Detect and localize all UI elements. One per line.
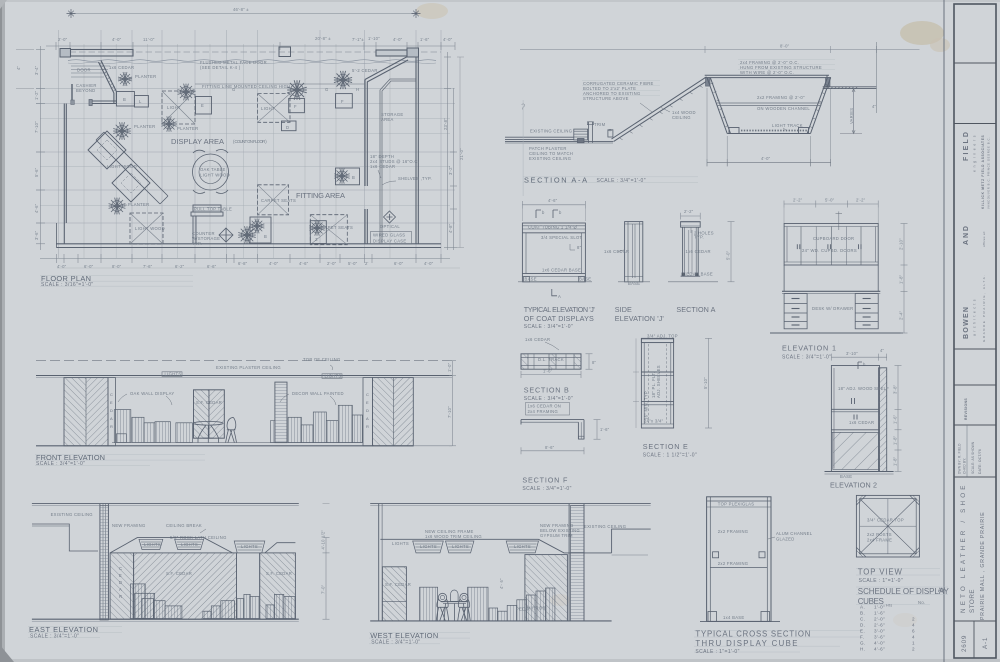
svg-text:7'-1"±: 7'-1"± [352, 37, 364, 42]
svg-text:B.: B. [860, 611, 865, 616]
svg-text:L: L [139, 99, 142, 104]
svg-text:BOWEN: BOWEN [963, 306, 970, 339]
svg-text:SCALE : 3/4"=1'-0": SCALE : 3/4"=1'-0" [524, 324, 573, 330]
svg-text:4'-6": 4'-6" [299, 261, 309, 266]
svg-text:REVISIONS: REVISIONS [964, 398, 968, 420]
svg-text:1x6 CEDAR: 1x6 CEDAR [849, 420, 874, 425]
svg-text:SCALE : 3/4"=1'-0": SCALE : 3/4"=1'-0" [524, 396, 573, 402]
svg-text:4": 4" [872, 104, 877, 109]
svg-text:SCALE: AS SHOWN: SCALE: AS SHOWN [971, 441, 975, 474]
svg-text:5'-0": 5'-0" [726, 250, 731, 260]
svg-text:D: D [119, 580, 122, 585]
svg-text:H.: H. [860, 647, 865, 652]
svg-text:8": 8" [577, 245, 582, 250]
svg-text:SCALE : 3/16"=1'-0": SCALE : 3/16"=1'-0" [41, 282, 94, 288]
svg-text:CEILING: CEILING [672, 115, 691, 120]
svg-text:SECTION E: SECTION E [643, 442, 688, 451]
svg-text:6'-2": 6'-2" [175, 264, 185, 269]
svg-text:LIGHTS: LIGHTS [165, 372, 182, 377]
svg-text:H: H [356, 87, 359, 92]
svg-text:SECTION F: SECTION F [522, 476, 568, 485]
svg-text:No.: No. [918, 600, 925, 605]
svg-text:1'-8": 1'-8" [893, 456, 898, 466]
svg-text:EXISTING PLASTER CEILING: EXISTING PLASTER CEILING [216, 365, 281, 370]
svg-text:S.F. CEDAR: S.F. CEDAR [166, 571, 192, 576]
svg-text:G.: G. [860, 641, 866, 646]
svg-text:4'- 6": 4'- 6" [499, 578, 504, 589]
svg-text:6'-0": 6'-0" [394, 261, 404, 266]
svg-text:PLANTER: PLANTER [177, 126, 198, 131]
svg-text:1'-6": 1'-6" [893, 414, 898, 424]
svg-text:4'-0": 4'-0" [393, 37, 403, 42]
svg-text:TRIM: TRIM [594, 122, 606, 127]
svg-text:TOP VIEW: TOP VIEW [858, 568, 903, 577]
svg-text:4'-8": 4'-8" [448, 223, 453, 233]
svg-text:CHKD BY:: CHKD BY: [963, 458, 967, 474]
svg-text:11'-0": 11'-0" [143, 37, 155, 42]
svg-text:LIGHTS: LIGHTS [514, 544, 531, 549]
svg-text:Hts: Hts [886, 604, 893, 608]
svg-text:ELEVATION 'J': ELEVATION 'J' [615, 314, 665, 323]
svg-text:8'-6": 8'-6" [545, 445, 555, 450]
svg-text:SECTION A-A: SECTION A-A [524, 175, 587, 184]
svg-text:2'-0": 2'-0" [58, 37, 68, 42]
svg-text:B: B [123, 97, 126, 102]
svg-text:WITH WIRE @ 2'-0" O.C.: WITH WIRE @ 2'-0" O.C. [740, 70, 794, 75]
svg-text:18" ADJ. WOOD SHELF: 18" ADJ. WOOD SHELF [838, 386, 889, 391]
svg-text:B: B [264, 234, 267, 239]
svg-text:BASE: BASE [840, 474, 852, 479]
svg-text:3'-6": 3'-6" [874, 635, 885, 640]
svg-text:1x6 CEDAR: 1x6 CEDAR [604, 249, 629, 254]
svg-text:ELEVATION 1: ELEVATION 1 [782, 344, 836, 353]
svg-text:Z: Z [315, 237, 318, 242]
svg-text:2: 2 [912, 647, 915, 652]
svg-text:A: A [110, 416, 113, 421]
svg-text:A: A [119, 587, 122, 592]
svg-text:5'-0": 5'-0" [348, 261, 358, 266]
svg-text:C.: C. [860, 617, 865, 622]
svg-text:DWN BY: R. FIELD: DWN BY: R. FIELD [958, 443, 962, 474]
svg-text:1'-0": 1'-0" [447, 362, 452, 372]
svg-text:EXISTING CEILING: EXISTING CEILING [584, 524, 626, 529]
svg-text:8'-0": 8'-0" [112, 264, 122, 269]
svg-text:LIGHT: LIGHT [167, 105, 181, 110]
svg-text:PLANTER: PLANTER [135, 74, 156, 79]
svg-text:46'-8" ±: 46'-8" ± [233, 7, 249, 12]
svg-text:2'-2": 2'-2" [684, 209, 694, 214]
svg-text:1x6 CEDAR BASE: 1x6 CEDAR BASE [542, 268, 581, 273]
svg-text:1'-2": 1'-2" [34, 90, 39, 100]
svg-text:1x6 CEDAR: 1x6 CEDAR [370, 164, 395, 169]
svg-text:1'-8": 1'-8" [893, 435, 898, 445]
svg-text:16" MIN. TYP.: 16" MIN. TYP. [644, 390, 649, 420]
svg-text:EXISTING CEILING: EXISTING CEILING [529, 156, 571, 161]
svg-text:SCALE : 3/4"=1'-0": SCALE : 3/4"=1'-0" [30, 633, 79, 639]
svg-text:EXISTING CEILING: EXISTING CEILING [530, 129, 572, 134]
svg-text:COAT TUBING 1 1/4"Ø: COAT TUBING 1 1/4"Ø [528, 224, 578, 229]
svg-text:24"x 3/4": 24"x 3/4" [644, 419, 664, 424]
svg-text:2'-0": 2'-0" [874, 617, 885, 622]
svg-text:R: R [119, 594, 122, 599]
svg-text:TYP.: TYP. [192, 241, 202, 246]
svg-text:C: C [119, 566, 122, 571]
svg-text:CARPET SEATS: CARPET SEATS [318, 225, 353, 230]
svg-text:DISPLAY CASE: DISPLAY CASE [373, 239, 406, 244]
svg-text:PULL TOP TABLE: PULL TOP TABLE [194, 207, 232, 212]
svg-text:D.L. TRACK: D.L. TRACK [538, 357, 564, 362]
svg-text:LIGHTS: LIGHTS [144, 542, 161, 547]
svg-text:SCALE : 3/4"=1'-0": SCALE : 3/4"=1'-0" [597, 178, 646, 184]
svg-text:A: A [366, 416, 369, 421]
svg-text:ALUM CHANNEL: ALUM CHANNEL [776, 531, 813, 536]
svg-text:NETO LEATHER / SHOE: NETO LEATHER / SHOE [960, 485, 967, 613]
svg-text:PLANTER: PLANTER [128, 202, 149, 207]
svg-text:1'-6": 1'-6" [874, 611, 885, 616]
svg-text:FITTING AREA: FITTING AREA [296, 191, 345, 200]
svg-text:A-1: A-1 [982, 637, 989, 649]
svg-text:5'-2 CEDAR: 5'-2 CEDAR [352, 68, 378, 73]
svg-text:offices at:: offices at: [982, 231, 986, 247]
svg-text:b: b [559, 210, 562, 215]
svg-text:NEW FRAMING: NEW FRAMING [112, 523, 146, 528]
svg-text:C: C [110, 392, 113, 397]
svg-text:TYPICAL CROSS SECTION: TYPICAL CROSS SECTION [695, 630, 810, 639]
svg-text:GLAZED: GLAZED [776, 537, 795, 542]
svg-text:3'-10": 3'-10" [846, 351, 858, 356]
svg-text:2'-0": 2'-0" [327, 261, 337, 266]
svg-text:SCALE : 3/4"=1'-0": SCALE : 3/4"=1'-0" [522, 486, 571, 492]
svg-text:F.: F. [860, 635, 864, 640]
svg-text:2x4 FRAME: 2x4 FRAME [867, 538, 892, 543]
svg-text:FIELD: FIELD [963, 131, 970, 161]
svg-text:20'-8" ±: 20'-8" ± [315, 36, 331, 41]
svg-text:SCALE : 3/4"=1'-0": SCALE : 3/4"=1'-0" [782, 355, 831, 361]
svg-text:1x6 CEDAR: 1x6 CEDAR [109, 65, 134, 70]
svg-text:5'-10": 5'-10" [703, 377, 708, 389]
svg-text:C: C [366, 392, 369, 397]
svg-text:BEYOND: BEYOND [76, 88, 95, 93]
svg-text:LIGHTS: LIGHTS [452, 544, 469, 549]
svg-text:CUPBOARD DOOR: CUPBOARD DOOR [813, 236, 854, 241]
svg-text:TYPICAL ELEVATION 'J': TYPICAL ELEVATION 'J' [524, 305, 596, 314]
svg-text:4: 4 [912, 623, 915, 628]
svg-text:2'-2": 2'-2" [856, 198, 866, 203]
svg-text:2x2 FRAMING: 2x2 FRAMING [718, 561, 749, 566]
svg-text:DISPLAY AREA: DISPLAY AREA [171, 137, 224, 146]
svg-text:THRU DISPLAY CUBE: THRU DISPLAY CUBE [695, 639, 797, 648]
svg-text:4": 4" [16, 65, 21, 70]
svg-text:LIGHTS: LIGHTS [325, 374, 342, 379]
svg-text:SIDE: SIDE [615, 305, 632, 314]
svg-text:3'-4": 3'-4" [34, 65, 39, 75]
svg-text:LIGHT WOOD: LIGHT WOOD [135, 226, 165, 231]
svg-text:5'-0": 5'-0" [825, 198, 835, 203]
svg-text:4'-10 1/2": 4'-10 1/2" [321, 530, 326, 550]
svg-text:AND: AND [963, 225, 970, 245]
svg-text:1x4 BASE: 1x4 BASE [723, 615, 745, 620]
svg-text:E: E [366, 400, 369, 405]
svg-text:SCALE : 1"=1'-0": SCALE : 1"=1'-0" [859, 578, 903, 584]
svg-text:D: D [366, 408, 369, 413]
svg-text:e n g i n e e r s: e n g i n e e r s [973, 134, 977, 172]
svg-text:2': 2' [365, 261, 369, 266]
svg-text:1'-6": 1'-6" [543, 369, 553, 374]
svg-text:3'-6": 3'-6" [34, 230, 39, 240]
svg-text:AREA: AREA [381, 117, 394, 122]
svg-text:21'-0": 21'-0" [459, 148, 464, 160]
svg-text:7'-0": 7'-0" [321, 584, 326, 594]
svg-text:3'-2": 3'-2" [448, 165, 453, 175]
svg-text:6'-8": 6'-8" [238, 261, 248, 266]
svg-text:LIGHTS: LIGHTS [420, 544, 437, 549]
svg-text:3'-0": 3'-0" [874, 629, 885, 634]
svg-text:OAK WALL DISPLAY: OAK WALL DISPLAY [130, 391, 174, 396]
svg-text:OPTICAL: OPTICAL [380, 224, 400, 229]
svg-text:4'-6": 4'-6" [874, 647, 885, 652]
svg-text:E.: E. [860, 629, 865, 634]
svg-text:DATE: OCT/76: DATE: OCT/76 [978, 449, 982, 474]
svg-text:4'-0": 4'-0" [269, 261, 279, 266]
svg-text:1: 1 [912, 641, 915, 646]
svg-text:VARIES: VARIES [849, 108, 854, 124]
svg-text:BASE: BASE [525, 277, 537, 282]
svg-text:8'-0": 8'-0" [780, 44, 790, 49]
svg-text:SHELVES ,TYP.: SHELVES ,TYP. [398, 176, 432, 181]
svg-text:S.F. CEDAR: S.F. CEDAR [385, 582, 411, 587]
svg-text:E: E [110, 400, 113, 405]
svg-text:D: D [286, 125, 289, 130]
svg-text:4'-0": 4'-0" [112, 37, 122, 42]
svg-text:2x4 FRAMING: 2x4 FRAMING [528, 409, 559, 414]
svg-text:b: b [863, 362, 866, 367]
svg-text:1x6 CEDAR ON: 1x6 CEDAR ON [528, 404, 562, 409]
svg-text:a r c h i t e c t s: a r c h i t e c t s [973, 298, 977, 336]
svg-text:4'-0": 4'-0" [57, 264, 67, 269]
svg-text:G: G [232, 87, 236, 92]
svg-text:R: R [366, 424, 369, 429]
svg-text:TOP OF CEILING: TOP OF CEILING [303, 357, 341, 362]
svg-text:LIGHTS: LIGHTS [241, 544, 258, 549]
svg-text:2609: 2609 [961, 635, 968, 652]
svg-text:4": 4" [880, 348, 885, 353]
svg-text:VANCOUVER B.C. PRINCE GEORG: VANCOUVER B.C. PRINCE GEORGE B.C. [987, 137, 991, 209]
svg-text:5'-6": 5'-6" [34, 167, 39, 177]
svg-text:7'-6": 7'-6" [143, 264, 153, 269]
svg-text:3/4" ADJ. TOP: 3/4" ADJ. TOP [647, 334, 678, 339]
svg-text:BASE: BASE [628, 281, 640, 286]
svg-text:4'-0": 4'-0" [761, 156, 771, 161]
svg-text:1'-0": 1'-0" [874, 605, 885, 610]
svg-text:WIRED GLASS: WIRED GLASS [373, 233, 405, 238]
svg-text:B: B [352, 175, 355, 180]
svg-text:DECOR WALL PAINTED: DECOR WALL PAINTED [292, 391, 344, 396]
svg-text:SCALE : 3/4"=1'-0": SCALE : 3/4"=1'-0" [371, 639, 420, 645]
svg-text:D: D [110, 408, 113, 413]
svg-text:STORE: STORE [969, 589, 976, 613]
svg-text:ADJ. SHELVES: ADJ. SHELVES [656, 365, 661, 398]
svg-text:( COUNT ON FLOOR ): ( COUNT ON FLOOR ) [233, 139, 267, 144]
svg-text:2'-2": 2'-2" [793, 198, 803, 203]
svg-text:S.F. CEDAR: S.F. CEDAR [266, 571, 292, 576]
svg-text:SCALE : 1"=1'-0": SCALE : 1"=1'-0" [695, 649, 739, 655]
svg-text:GRANDE PRAIRIE, ALTA.: GRANDE PRAIRIE, ALTA. [982, 274, 986, 342]
svg-text:PEDS.: PEDS. [516, 607, 530, 612]
svg-text:LIGHTS: LIGHTS [392, 541, 409, 546]
svg-text:2'-6": 2'-6" [874, 623, 885, 628]
svg-text:A: A [558, 294, 561, 299]
svg-text:TYP.: TYP. [694, 235, 704, 240]
svg-text:F: F [341, 99, 344, 104]
svg-text:3/4 SPECIAL SLOT: 3/4 SPECIAL SLOT [541, 235, 583, 240]
svg-text:1x6 CEDAR: 1x6 CEDAR [686, 249, 711, 254]
svg-text:7'-10": 7'-10" [34, 121, 39, 133]
svg-text:TOP PLEXIGLAS: TOP PLEXIGLAS [718, 502, 755, 507]
svg-text:4'-0": 4'-0" [424, 261, 434, 266]
svg-text:LIGHTS: LIGHTS [181, 542, 198, 547]
svg-text:SCHEDULE OF DISPLAY: SCHEDULE OF DISPLAY [858, 587, 950, 596]
svg-text:SCALE : 1 1/2"=1'-0": SCALE : 1 1/2"=1'-0" [643, 453, 697, 459]
svg-text:DOOR: DOOR [77, 68, 91, 73]
svg-text:G: G [325, 87, 329, 92]
svg-text:23'-8": 23'-8" [443, 118, 448, 130]
svg-text:STRUCTURE ABOVE: STRUCTURE ABOVE [583, 96, 629, 101]
svg-text:4: 4 [912, 635, 915, 640]
svg-text:1x6 CEDAR: 1x6 CEDAR [525, 337, 550, 342]
svg-text:4'-0": 4'-0" [443, 37, 453, 42]
svg-text:BASE: BASE [579, 277, 591, 282]
svg-text:1'-6": 1'-6" [420, 37, 430, 42]
svg-text:2'-10": 2'-10" [899, 238, 904, 250]
svg-text:2: 2 [912, 617, 915, 622]
svg-text:1'-8": 1'-8" [899, 274, 904, 284]
svg-text:6: 6 [912, 629, 915, 634]
svg-text:R: R [110, 424, 113, 429]
svg-text:LIGHT WOOD: LIGHT WOOD [107, 164, 137, 169]
svg-text:LIGHT WOOD: LIGHT WOOD [200, 173, 230, 178]
svg-text:1'-6": 1'-6" [600, 427, 610, 432]
svg-text:6'-6": 6'-6" [207, 264, 217, 269]
svg-text:2'-4": 2'-4" [899, 310, 904, 320]
svg-text:4'-6": 4'-6" [548, 198, 558, 203]
svg-text:LIGHT TRACK: LIGHT TRACK [772, 123, 803, 128]
svg-text:S.F. CEDAR: S.F. CEDAR [196, 400, 222, 405]
svg-text:ON WOODEN CHANNEL: ON WOODEN CHANNEL [757, 106, 810, 111]
svg-text:ELEVATION 2: ELEVATION 2 [830, 480, 877, 489]
svg-text:DESK W/ DRAWER: DESK W/ DRAWER [812, 306, 854, 311]
svg-text:KILLICK METZ FIELD ASSOCIAT: KILLICK METZ FIELD ASSOCIATES [981, 135, 985, 209]
svg-text:CEILING BREAK: CEILING BREAK [166, 523, 202, 528]
svg-text:(SEE DETAIL K-4 ): (SEE DETAIL K-4 ) [200, 65, 241, 70]
svg-text:A.: A. [860, 605, 865, 610]
svg-text:8": 8" [592, 360, 597, 365]
svg-text:D.: D. [860, 623, 865, 628]
svg-text:LIGHT: LIGHT [261, 106, 275, 111]
svg-text:3/4" CEDAR TOP: 3/4" CEDAR TOP [867, 518, 904, 523]
svg-text:4'-0": 4'-0" [874, 641, 885, 646]
svg-text:E: E [201, 103, 204, 108]
svg-text:PLANTER: PLANTER [134, 124, 155, 129]
svg-text:2x2 POSTS: 2x2 POSTS [867, 532, 892, 537]
svg-text:24" WD. CUPBD. DOORS: 24" WD. CUPBD. DOORS [802, 248, 857, 253]
svg-text:3'-8": 3'-8" [893, 384, 898, 394]
svg-text:PRAIRIE MALL , GRANDE PRAIRI: PRAIRIE MALL , GRANDE PRAIRIE [980, 512, 986, 620]
svg-text:OF COAT DISPLAYS: OF COAT DISPLAYS [524, 314, 594, 323]
svg-text:CARPET SEATS: CARPET SEATS [261, 198, 296, 203]
svg-text:6'-0": 6'-0" [84, 264, 94, 269]
svg-text:F: F [294, 104, 297, 109]
svg-text:OAK TABLE: OAK TABLE [200, 167, 226, 172]
svg-text:EXISTING CEILING: EXISTING CEILING [51, 512, 93, 517]
svg-text:b: b [542, 210, 545, 215]
svg-text:FITTING LINE MOUNTED CEILIN: FITTING LINE MOUNTED CEILING HIGH [202, 84, 291, 89]
svg-text:1'-10": 1'-10" [368, 36, 380, 41]
svg-text:CEDAR BASE: CEDAR BASE [683, 271, 713, 276]
svg-text:4'-6": 4'-6" [34, 203, 39, 213]
svg-text:2x2 FRAMING: 2x2 FRAMING [718, 529, 749, 534]
svg-text:7'-10": 7'-10" [447, 406, 452, 418]
svg-text:SCALE : 3/4"=1'-0": SCALE : 3/4"=1'-0" [36, 461, 85, 467]
svg-text:E: E [119, 573, 122, 578]
svg-text:2x2 FRAMING @ 2'-0": 2x2 FRAMING @ 2'-0" [757, 95, 805, 100]
svg-text:SECTION A: SECTION A [676, 305, 715, 314]
svg-text:GYPSUM TRIM: GYPSUM TRIM [540, 533, 573, 538]
svg-text:SECTION B: SECTION B [524, 386, 569, 395]
svg-text:1x6 WOOD TRIM CEILING: 1x6 WOOD TRIM CEILING [425, 534, 482, 539]
